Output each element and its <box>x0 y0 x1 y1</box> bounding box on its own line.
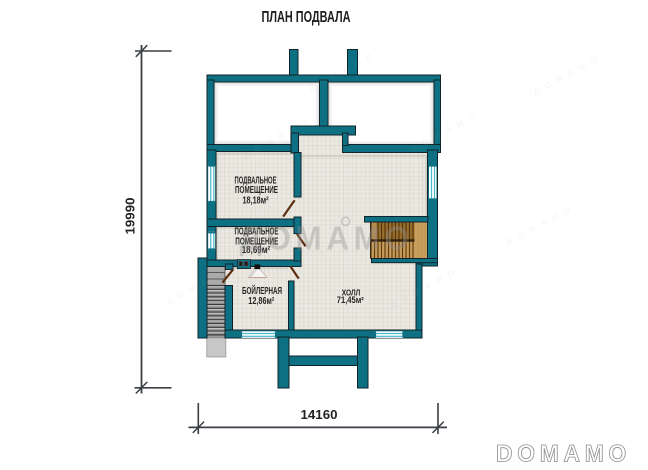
svg-text:ПЛАН ПОДВАЛА: ПЛАН ПОДВАЛА <box>262 9 351 26</box>
svg-text:18,18м²: 18,18м² <box>243 195 269 206</box>
svg-text:12,86м²: 12,86м² <box>248 296 274 307</box>
svg-text:19990: 19990 <box>124 197 138 234</box>
svg-text:DOMAMO: DOMAMO <box>496 441 631 468</box>
svg-text:71,45м²: 71,45м² <box>337 295 364 305</box>
svg-text:ДОМАМО: ДОМАМО <box>240 221 414 258</box>
svg-text:Д О М А М О: Д О М А М О <box>531 53 600 96</box>
svg-text:14160: 14160 <box>301 408 338 422</box>
svg-text:Д О М А М О: Д О М А М О <box>504 203 573 246</box>
